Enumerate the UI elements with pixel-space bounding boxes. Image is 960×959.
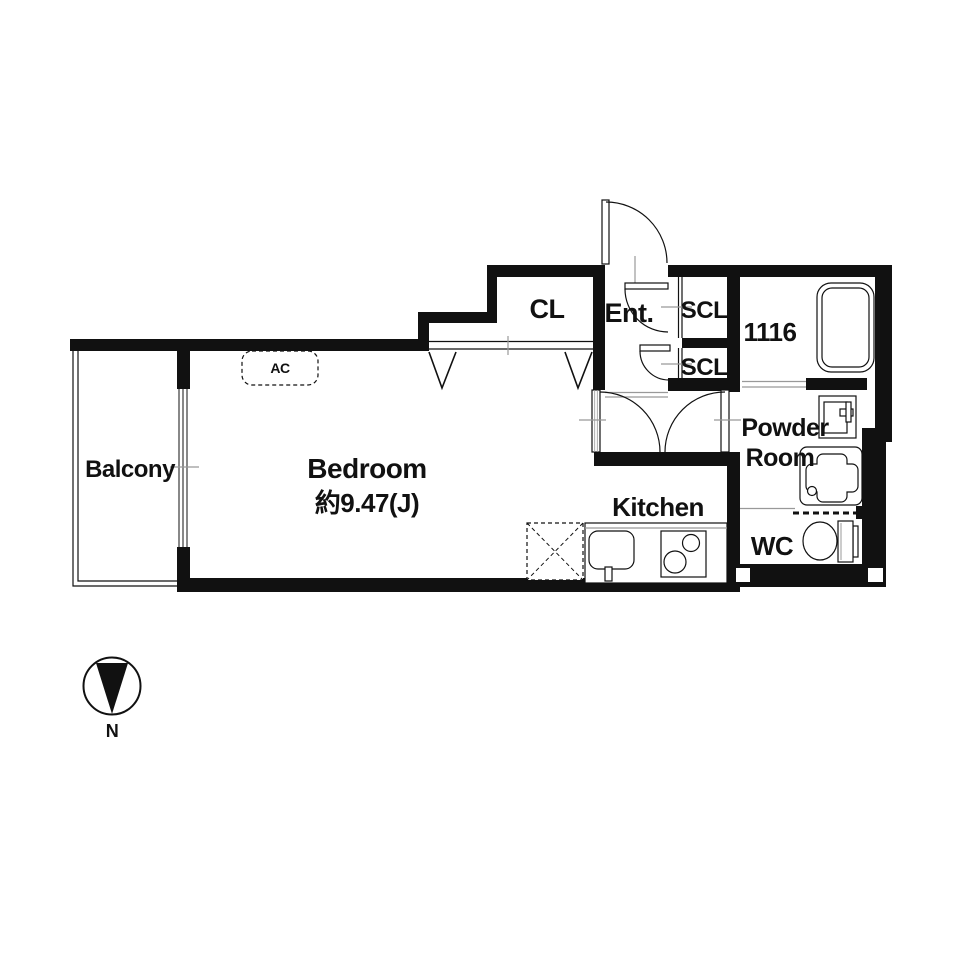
door-leaf xyxy=(721,390,729,452)
drain-icon xyxy=(808,487,817,496)
wc-label: WC xyxy=(751,531,794,561)
wall-segment xyxy=(487,265,605,277)
pillar-notch xyxy=(868,568,883,582)
bath-door-opening xyxy=(742,382,806,388)
closet-opening xyxy=(428,336,593,388)
wall-segment xyxy=(727,564,886,587)
door-leaf xyxy=(592,390,600,452)
door-swing-arc xyxy=(606,202,667,263)
wall-segment xyxy=(856,506,886,519)
floor-plan-page: AC Balcony Bedroom 約9.47(J) CL Ent. SCL … xyxy=(0,0,960,959)
wall-segment xyxy=(862,428,886,580)
pillar-notch xyxy=(736,568,750,582)
bedroom-label: Bedroom xyxy=(307,453,426,484)
door-swing-arc xyxy=(640,351,669,380)
bathtub xyxy=(817,283,874,372)
wall-segment xyxy=(875,265,892,442)
floor-plan-canvas: AC Balcony Bedroom 約9.47(J) CL Ent. SCL … xyxy=(0,0,960,959)
wall-segment xyxy=(682,338,727,348)
door-leaf xyxy=(640,345,670,351)
door-swing-arc xyxy=(600,392,660,452)
ac-label: AC xyxy=(270,360,290,376)
closet-label: CL xyxy=(530,294,565,324)
shoe-closet-upper-label: SCL xyxy=(681,297,728,324)
ac-unit: AC xyxy=(242,351,318,385)
wall-segment xyxy=(668,265,892,277)
kitchen-label: Kitchen xyxy=(612,492,704,522)
hanger-mark-icon xyxy=(565,352,592,388)
wall-segment xyxy=(727,452,740,580)
burner-icon xyxy=(683,535,700,552)
bath-size-label: 1116 xyxy=(744,317,797,347)
door-swing-arc xyxy=(665,392,725,452)
toilet-back-panel xyxy=(853,526,858,557)
door-leaf xyxy=(602,200,609,264)
burner-icon xyxy=(664,551,686,573)
wall-segment xyxy=(593,265,605,390)
compass-north-label: N xyxy=(106,721,119,741)
toilet-bowl-icon xyxy=(803,522,837,560)
powder-room-label-line2: Room xyxy=(746,444,815,472)
bedroom-size-label: 約9.47(J) xyxy=(315,488,419,518)
toilet-tank-icon xyxy=(838,521,853,562)
hanger-mark-icon xyxy=(429,352,456,388)
wall-segment xyxy=(177,339,190,389)
faucet-handle xyxy=(846,402,851,422)
powder-room-label-line1: Powder xyxy=(741,414,829,442)
refrigerator-icon xyxy=(527,523,583,580)
door-leaf xyxy=(625,283,668,289)
bathtub-inner-line xyxy=(822,288,869,367)
balcony-window xyxy=(177,389,190,547)
wall-segment xyxy=(594,452,728,466)
wall-segment xyxy=(806,378,867,390)
kitchen-counter xyxy=(585,523,727,583)
wall-segment xyxy=(727,277,740,392)
wc-sliding-door xyxy=(740,509,856,514)
kitchen-sink-icon xyxy=(589,531,634,569)
wall-segment xyxy=(70,339,428,351)
shoe-closet-lower-label: SCL xyxy=(681,354,728,381)
entrance-label: Ent. xyxy=(605,298,654,328)
balcony-label: Balcony xyxy=(85,456,176,483)
refrigerator-space xyxy=(527,523,583,580)
hall-doors xyxy=(579,390,741,452)
faucet-icon xyxy=(605,567,612,581)
toilet xyxy=(803,521,858,562)
wall-segment xyxy=(418,312,497,323)
compass: N xyxy=(84,658,141,742)
room-labels: Balcony Bedroom 約9.47(J) CL Ent. SCL SCL… xyxy=(85,294,829,561)
